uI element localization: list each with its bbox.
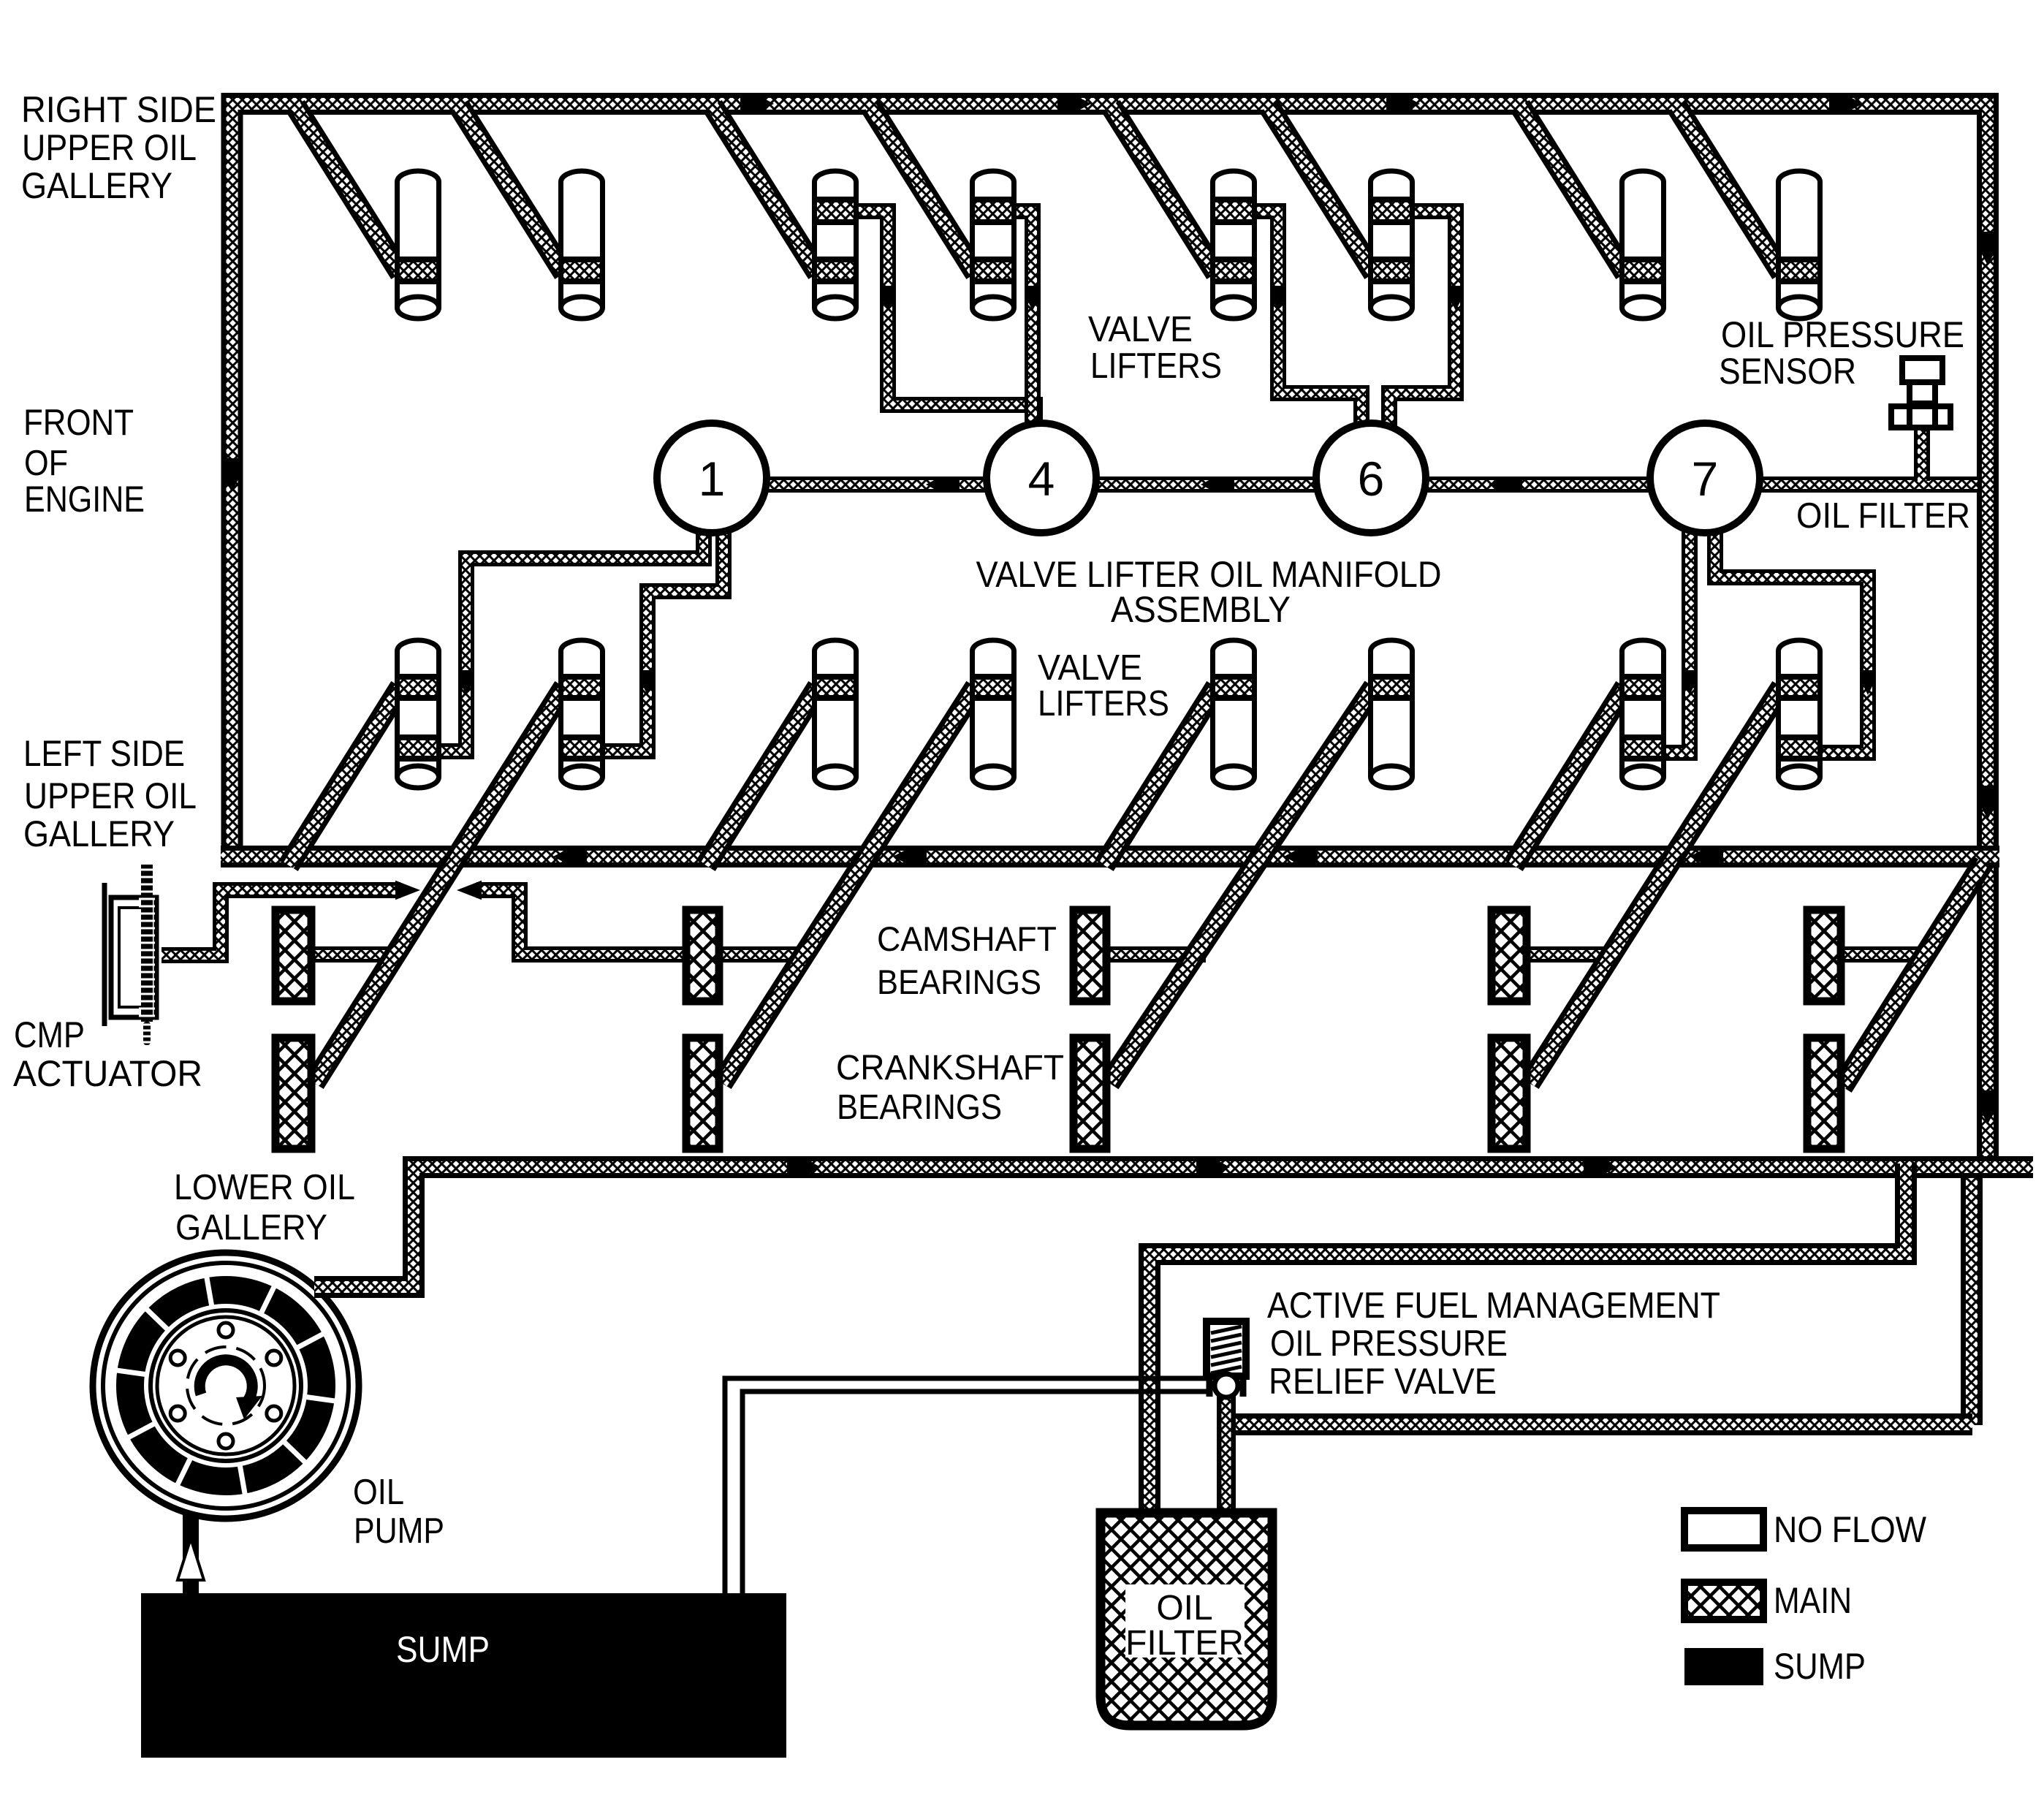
svg-text:VALVE: VALVE xyxy=(1088,310,1193,349)
svg-text:FRONT: FRONT xyxy=(23,402,134,443)
svg-text:UPPER OIL: UPPER OIL xyxy=(24,775,197,816)
svg-text:GALLERY: GALLERY xyxy=(23,813,175,854)
svg-text:CMP: CMP xyxy=(14,1014,85,1055)
svg-text:ASSEMBLY: ASSEMBLY xyxy=(1111,589,1291,630)
svg-text:OIL PRESSURE: OIL PRESSURE xyxy=(1721,314,1964,355)
svg-text:PUMP: PUMP xyxy=(354,1511,444,1551)
svg-text:4: 4 xyxy=(1028,452,1055,506)
svg-text:1: 1 xyxy=(699,452,726,506)
svg-text:ENGINE: ENGINE xyxy=(24,479,145,520)
svg-text:SUMP: SUMP xyxy=(396,1629,490,1670)
svg-text:OIL: OIL xyxy=(1156,1589,1212,1628)
svg-text:OIL: OIL xyxy=(353,1473,404,1512)
svg-text:CRANKSHAFT: CRANKSHAFT xyxy=(836,1049,1064,1087)
svg-text:GALLERY: GALLERY xyxy=(175,1208,327,1248)
svg-text:OIL PRESSURE: OIL PRESSURE xyxy=(1270,1323,1508,1364)
svg-text:NO FLOW: NO FLOW xyxy=(1774,1509,1927,1550)
svg-text:RELIEF VALVE: RELIEF VALVE xyxy=(1269,1361,1497,1402)
svg-text:ACTIVE FUEL MANAGEMENT: ACTIVE FUEL MANAGEMENT xyxy=(1267,1285,1720,1326)
svg-text:SENSOR: SENSOR xyxy=(1719,351,1856,392)
svg-text:OIL FILTER: OIL FILTER xyxy=(1796,496,1970,536)
svg-text:CAMSHAFT: CAMSHAFT xyxy=(877,919,1057,958)
svg-text:MAIN: MAIN xyxy=(1774,1580,1852,1621)
svg-text:GALLERY: GALLERY xyxy=(21,165,172,206)
svg-text:BEARINGS: BEARINGS xyxy=(877,963,1041,1001)
svg-text:VALVE: VALVE xyxy=(1038,648,1142,688)
svg-text:6: 6 xyxy=(1358,452,1385,506)
svg-text:FILTER: FILTER xyxy=(1125,1624,1244,1663)
svg-text:LIFTERS: LIFTERS xyxy=(1090,346,1222,386)
svg-text:ACTUATOR: ACTUATOR xyxy=(13,1053,202,1094)
svg-text:UPPER OIL: UPPER OIL xyxy=(22,127,197,168)
svg-text:LIFTERS: LIFTERS xyxy=(1038,684,1169,724)
svg-text:RIGHT SIDE: RIGHT SIDE xyxy=(21,89,216,130)
svg-text:LOWER OIL: LOWER OIL xyxy=(174,1168,355,1207)
svg-text:7: 7 xyxy=(1692,452,1719,506)
svg-text:SUMP: SUMP xyxy=(1774,1646,1866,1687)
svg-text:LEFT SIDE: LEFT SIDE xyxy=(23,733,185,774)
svg-text:OF: OF xyxy=(24,444,68,483)
svg-text:BEARINGS: BEARINGS xyxy=(837,1088,1002,1127)
